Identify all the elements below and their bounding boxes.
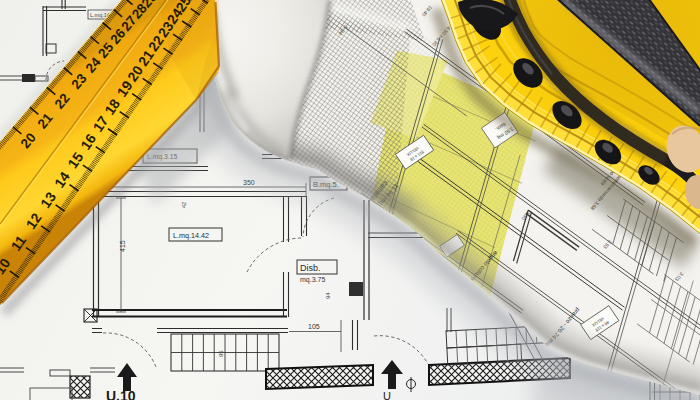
svg-text:L.mq.14.42: L.mq.14.42 <box>173 231 209 240</box>
svg-text:U: U <box>383 390 391 400</box>
svg-text:95: 95 <box>218 350 224 357</box>
svg-text:42: 42 <box>181 202 187 208</box>
svg-text:105: 105 <box>308 323 320 330</box>
svg-text:mq.3.75: mq.3.75 <box>300 276 325 284</box>
svg-text:Disb.: Disb. <box>300 263 321 273</box>
svg-text:94: 94 <box>325 292 331 299</box>
svg-text:415: 415 <box>119 240 126 252</box>
svg-text:U.10: U.10 <box>106 388 136 400</box>
